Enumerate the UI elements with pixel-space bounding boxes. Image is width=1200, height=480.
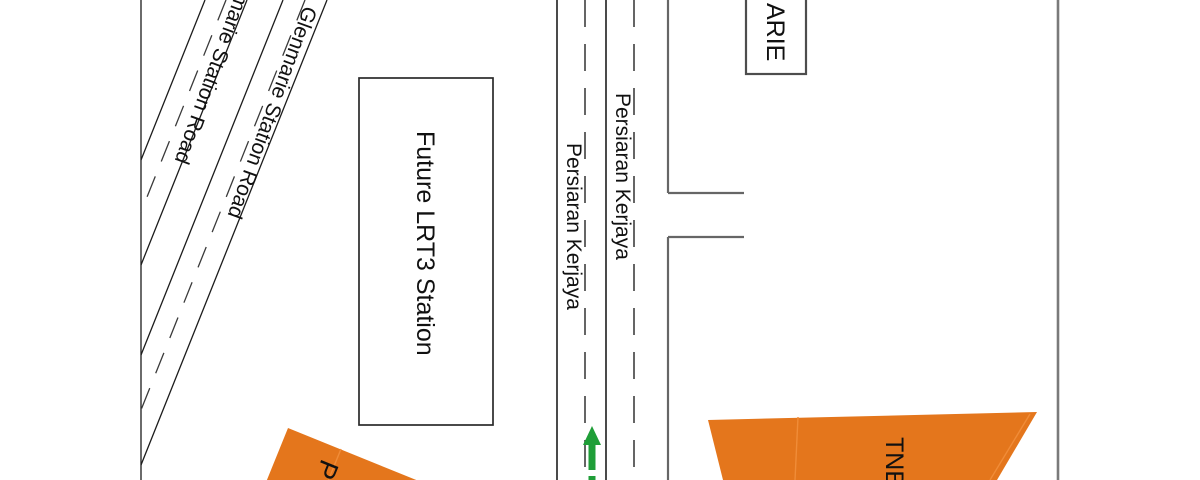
glenmarie-station-road-label-partial: marie Station Road: [170, 0, 253, 167]
direction-arrow-head: [583, 426, 601, 445]
tnb-label: TNB: [880, 437, 908, 480]
persiaran-kerjaya-label-west: Persiaran Kerjaya: [562, 143, 585, 310]
site-map-canvas: marie Station Road Glenmarie Station Roa…: [0, 0, 1200, 480]
direction-arrow-next-segment: [589, 476, 596, 480]
future-lrt3-station-label: Future LRT3 Station: [411, 131, 439, 356]
site-map: marie Station Road Glenmarie Station Roa…: [0, 0, 1200, 480]
persiaran-kerjaya-label-east: Persiaran Kerjaya: [611, 93, 634, 260]
direction-arrow-shaft: [589, 442, 596, 470]
glenmarie-building-label: ARIE: [761, 3, 789, 61]
tnb-block-shape: [708, 412, 1037, 480]
p-block: P: [243, 428, 473, 480]
p-block-shape: [243, 428, 473, 480]
tnb-block: TNB: [708, 412, 1037, 480]
